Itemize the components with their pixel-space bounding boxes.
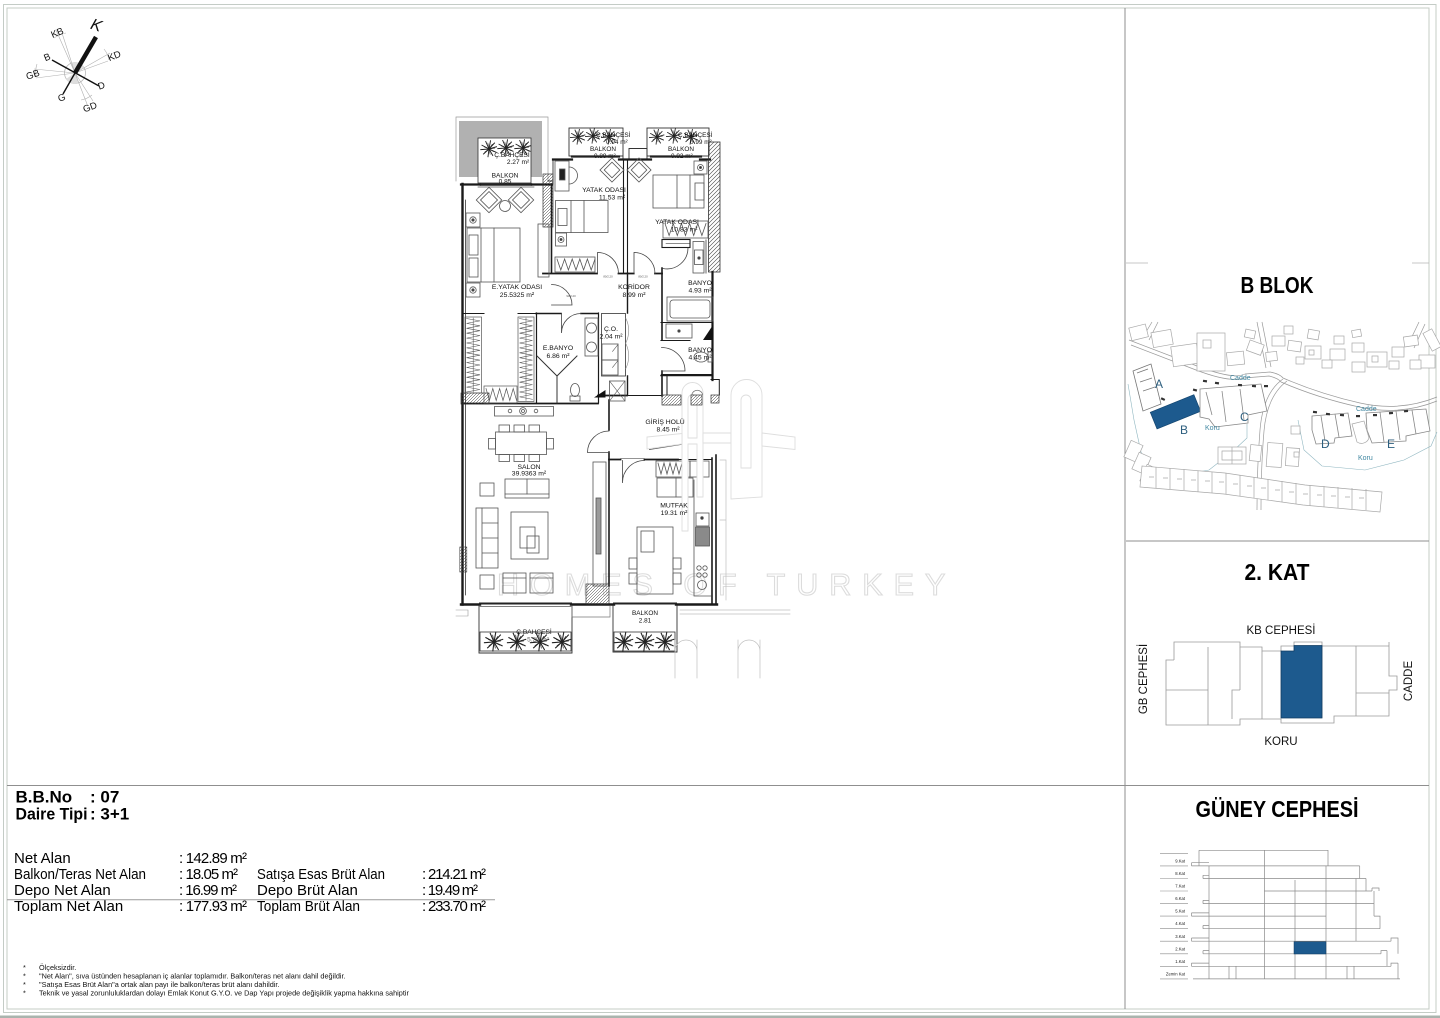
svg-text:YATAK ODASI: YATAK ODASI (655, 219, 699, 226)
svg-text:K: K (88, 16, 105, 36)
svg-text:1.Kat: 1.Kat (1175, 959, 1186, 964)
svg-text:Ç.BAHÇESİ: Ç.BAHÇESİ (516, 627, 552, 636)
svg-text:2. KAT: 2. KAT (1245, 559, 1311, 585)
svg-text:KB: KB (50, 26, 66, 41)
svg-text:6.Kat: 6.Kat (1175, 896, 1186, 901)
svg-text:GD: GD (82, 100, 99, 115)
svg-text:BALKON: BALKON (632, 610, 658, 617)
svg-text:2.81: 2.81 (639, 618, 652, 625)
svg-text:Toplam Net Alan: Toplam Net Alan (14, 898, 123, 915)
svg-text:Ç.O.: Ç.O. (604, 326, 618, 333)
svg-text:D: D (97, 80, 107, 93)
svg-text:GB CEPHESİ: GB CEPHESİ (1137, 644, 1150, 714)
svg-text:7.Kat: 7.Kat (1175, 884, 1186, 889)
svg-text:G: G (56, 92, 67, 105)
svg-text:GÜNEY CEPHESİ: GÜNEY CEPHESİ (1196, 796, 1359, 822)
svg-text:Ç.BAHÇESİ: Ç.BAHÇESİ (678, 130, 713, 139)
svg-text:Satışa Esas Brüt Alan: Satışa Esas Brüt Alan (257, 866, 385, 883)
svg-text:GİRİŞ HOLÜ: GİRİŞ HOLÜ (645, 417, 684, 426)
svg-text:Ç.BAHÇESİ: Ç.BAHÇESİ (494, 150, 530, 159)
svg-text:Daire Tipi: Daire Tipi (16, 805, 88, 824)
svg-text:5.Kat: 5.Kat (1175, 909, 1186, 914)
svg-text:8.99 m²: 8.99 m² (622, 292, 646, 299)
svg-text:2.27 m²: 2.27 m² (507, 159, 530, 166)
svg-text:: 142.89 m²: : 142.89 m² (179, 850, 247, 867)
svg-text:KORİDOR: KORİDOR (618, 282, 650, 291)
svg-text:B BLOK: B BLOK (1241, 272, 1314, 298)
svg-text:BANYO: BANYO (688, 347, 712, 354)
svg-text:CADDE: CADDE (1403, 661, 1415, 702)
svg-text:4.Kat: 4.Kat (1175, 921, 1186, 926)
svg-text:*: * (23, 989, 26, 998)
svg-text:BALKON: BALKON (590, 146, 616, 153)
svg-text:6.86 m²: 6.86 m² (546, 353, 570, 360)
svg-text:Zemin Kat: Zemin Kat (1166, 971, 1186, 976)
svg-text:MUTFAK: MUTFAK (660, 503, 688, 510)
svg-text:Depo Net Alan: Depo Net Alan (14, 882, 111, 899)
svg-text:E: E (1387, 437, 1395, 451)
svg-text:: 233.70 m²: : 233.70 m² (422, 898, 486, 915)
svg-text:E.BANYO: E.BANYO (543, 345, 573, 352)
svg-text:80/2.20: 80/2.20 (603, 275, 613, 279)
svg-text:4.93 m²: 4.93 m² (688, 288, 712, 295)
svg-text:: 214.21 m²: : 214.21 m² (422, 866, 486, 883)
svg-text:KORU: KORU (1264, 736, 1297, 748)
svg-text:19.31 m²: 19.31 m² (661, 510, 689, 517)
svg-text:Cadde: Cadde (1230, 375, 1251, 382)
svg-text:8.45 m²: 8.45 m² (656, 427, 680, 434)
svg-text:Koru: Koru (1205, 425, 1220, 432)
svg-text:YATAK ODASI: YATAK ODASI (582, 187, 626, 194)
svg-text:Balkon/Teras Net Alan: Balkon/Teras Net Alan (14, 866, 146, 883)
svg-text:Teknik ve yasal zorunluluklard: Teknik ve yasal zorunluluklardan dolayı … (39, 989, 409, 998)
svg-text:A: A (1155, 377, 1163, 391)
svg-text:Cadde: Cadde (1356, 406, 1377, 413)
svg-text:Depo Brüt Alan: Depo Brüt Alan (257, 882, 358, 899)
svg-text:9.Kat: 9.Kat (1175, 858, 1186, 863)
svg-text:HOMES OF TURKEY: HOMES OF TURKEY (497, 568, 956, 602)
svg-text:10.83 m²: 10.83 m² (671, 227, 699, 234)
svg-text:4.45 m²: 4.45 m² (688, 355, 712, 362)
svg-text:: 3+1: : 3+1 (90, 805, 129, 824)
svg-text:90/2.20: 90/2.20 (566, 294, 576, 298)
svg-text:5.29 m²: 5.29 m² (527, 637, 549, 644)
svg-text:BALKON: BALKON (668, 146, 694, 153)
svg-text:: 177.93 m²: : 177.93 m² (179, 898, 247, 915)
svg-text:Net Alan: Net Alan (14, 850, 71, 867)
svg-text:B: B (1180, 423, 1188, 437)
svg-text:39.9363 m²: 39.9363 m² (512, 471, 547, 478)
svg-text:25.5325 m²: 25.5325 m² (500, 292, 535, 299)
svg-text:0.94 m²: 0.94 m² (606, 139, 628, 146)
svg-text:8.Kat: 8.Kat (1175, 871, 1186, 876)
svg-text:2.04 m²: 2.04 m² (599, 334, 623, 341)
svg-text:KD: KD (106, 49, 122, 64)
svg-text:2.Kat: 2.Kat (1175, 946, 1186, 951)
svg-text:: 16.99 m²: : 16.99 m² (179, 882, 237, 899)
svg-text:Koru: Koru (1358, 455, 1373, 462)
svg-text:E.YATAK ODASI: E.YATAK ODASI (492, 284, 542, 291)
svg-text:C: C (1240, 410, 1249, 424)
svg-text:GB: GB (25, 68, 41, 83)
svg-text:3.Kat: 3.Kat (1175, 934, 1186, 939)
svg-text:KB CEPHESİ: KB CEPHESİ (1246, 624, 1315, 637)
svg-text:D: D (1321, 437, 1330, 451)
svg-text:BANYO: BANYO (688, 280, 712, 287)
svg-text:B: B (42, 51, 52, 64)
svg-text:Toplam Brüt Alan: Toplam Brüt Alan (257, 898, 360, 915)
svg-text:Ç.BAHÇESİ: Ç.BAHÇESİ (596, 130, 631, 139)
svg-text:11.53 m²: 11.53 m² (599, 195, 626, 202)
svg-text:80/2.20: 80/2.20 (638, 275, 648, 279)
svg-text:: 19.49 m²: : 19.49 m² (422, 882, 478, 899)
svg-text:: 18.05 m²: : 18.05 m² (179, 866, 238, 883)
